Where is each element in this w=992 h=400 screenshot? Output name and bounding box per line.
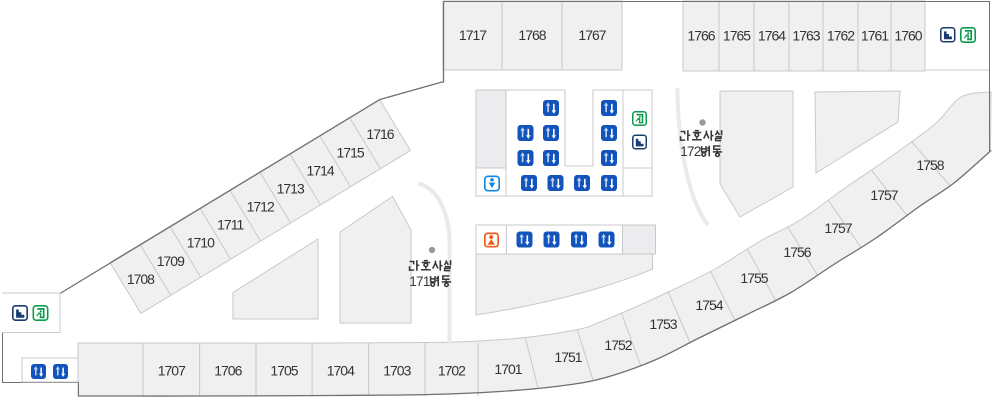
svg-text:1705: 1705 [270,363,298,379]
svg-text:1757: 1757 [870,187,898,203]
svg-text:1754: 1754 [695,297,723,313]
svg-text:1752: 1752 [604,337,632,353]
svg-text:1761: 1761 [861,28,889,44]
svg-text:1711: 1711 [217,217,244,233]
svg-text:1702: 1702 [438,363,466,379]
svg-text:171: 171 [409,274,430,289]
svg-text:1756: 1756 [783,244,811,260]
svg-text:1714: 1714 [307,162,335,178]
svg-text:1716: 1716 [366,126,394,142]
svg-text:1706: 1706 [214,363,242,379]
svg-text:1717: 1717 [459,27,487,43]
svg-text:1707: 1707 [158,363,186,379]
svg-text:1708: 1708 [127,271,155,287]
svg-text:1701: 1701 [494,361,522,377]
svg-text:1703: 1703 [383,363,411,379]
svg-text:1753: 1753 [649,316,677,332]
svg-text:1709: 1709 [157,253,185,269]
svg-text:1766: 1766 [687,28,715,44]
svg-text:1768: 1768 [518,27,546,43]
svg-text:1715: 1715 [337,144,365,160]
svg-text:1713: 1713 [277,180,305,196]
svg-text:1764: 1764 [758,28,786,44]
svg-text:1755: 1755 [740,270,768,286]
svg-text:1758: 1758 [916,157,944,173]
svg-text:1760: 1760 [894,28,922,44]
svg-text:1710: 1710 [187,235,215,251]
svg-text:1763: 1763 [792,28,820,44]
svg-text:1757: 1757 [824,220,852,236]
svg-text:1712: 1712 [247,199,275,215]
svg-text:1767: 1767 [578,27,606,43]
svg-text:1762: 1762 [827,28,855,44]
svg-text:1765: 1765 [723,28,751,44]
svg-text:1751: 1751 [554,349,582,365]
svg-text:172: 172 [680,144,701,159]
svg-text:1704: 1704 [327,363,355,379]
